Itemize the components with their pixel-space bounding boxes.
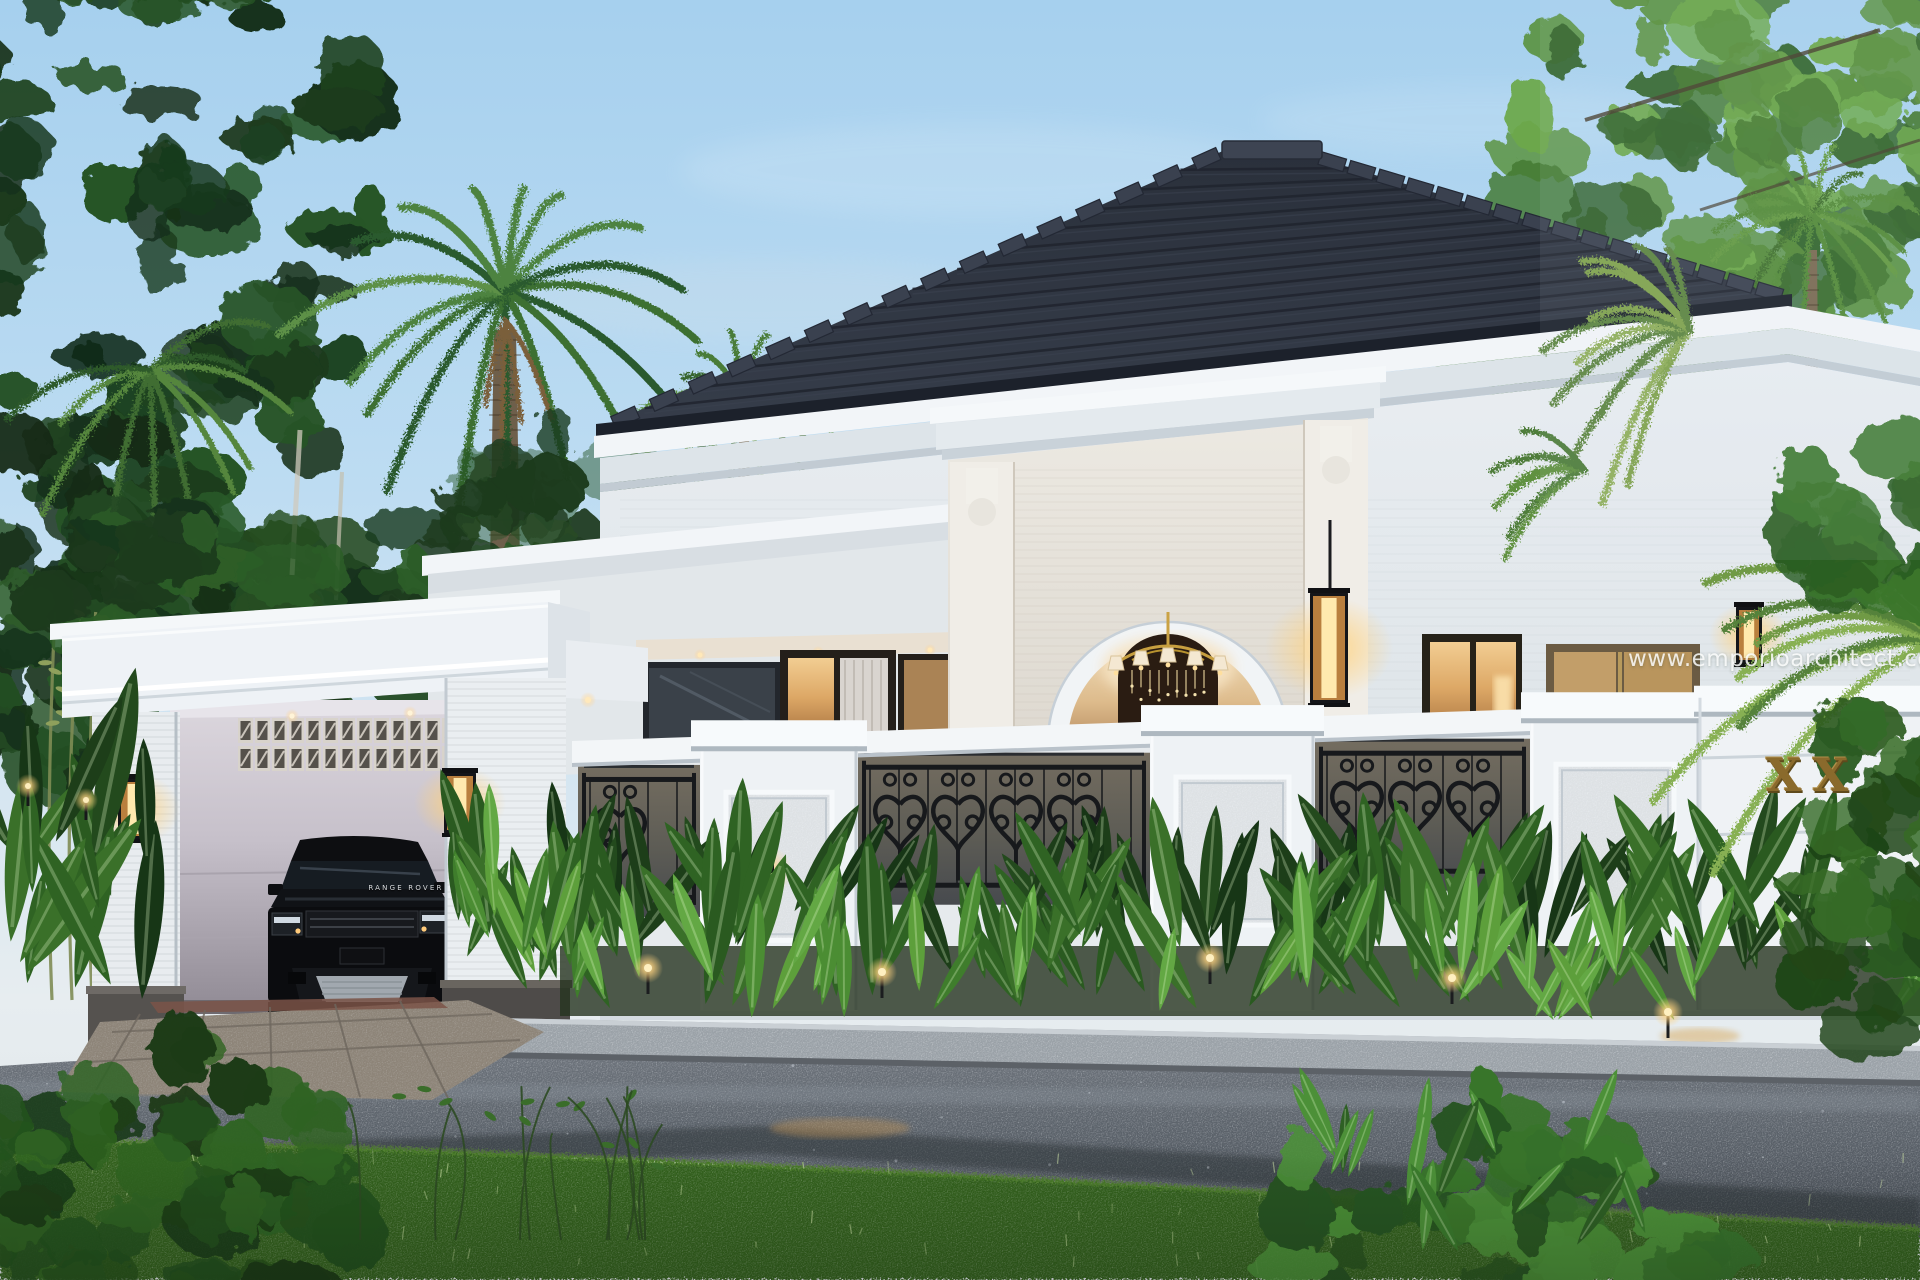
- car-brand-badge: RANGE ROVER: [356, 884, 456, 892]
- house-number-plaque: XX: [1766, 748, 1859, 802]
- villa-render: www.emporioarchitect.com XX RANGE ROVER: [0, 0, 1920, 1280]
- watermark-text: www.emporioarchitect.com: [1628, 646, 1920, 672]
- scene-canvas: [0, 0, 1920, 1280]
- entrance-bay-layer: [930, 366, 1393, 762]
